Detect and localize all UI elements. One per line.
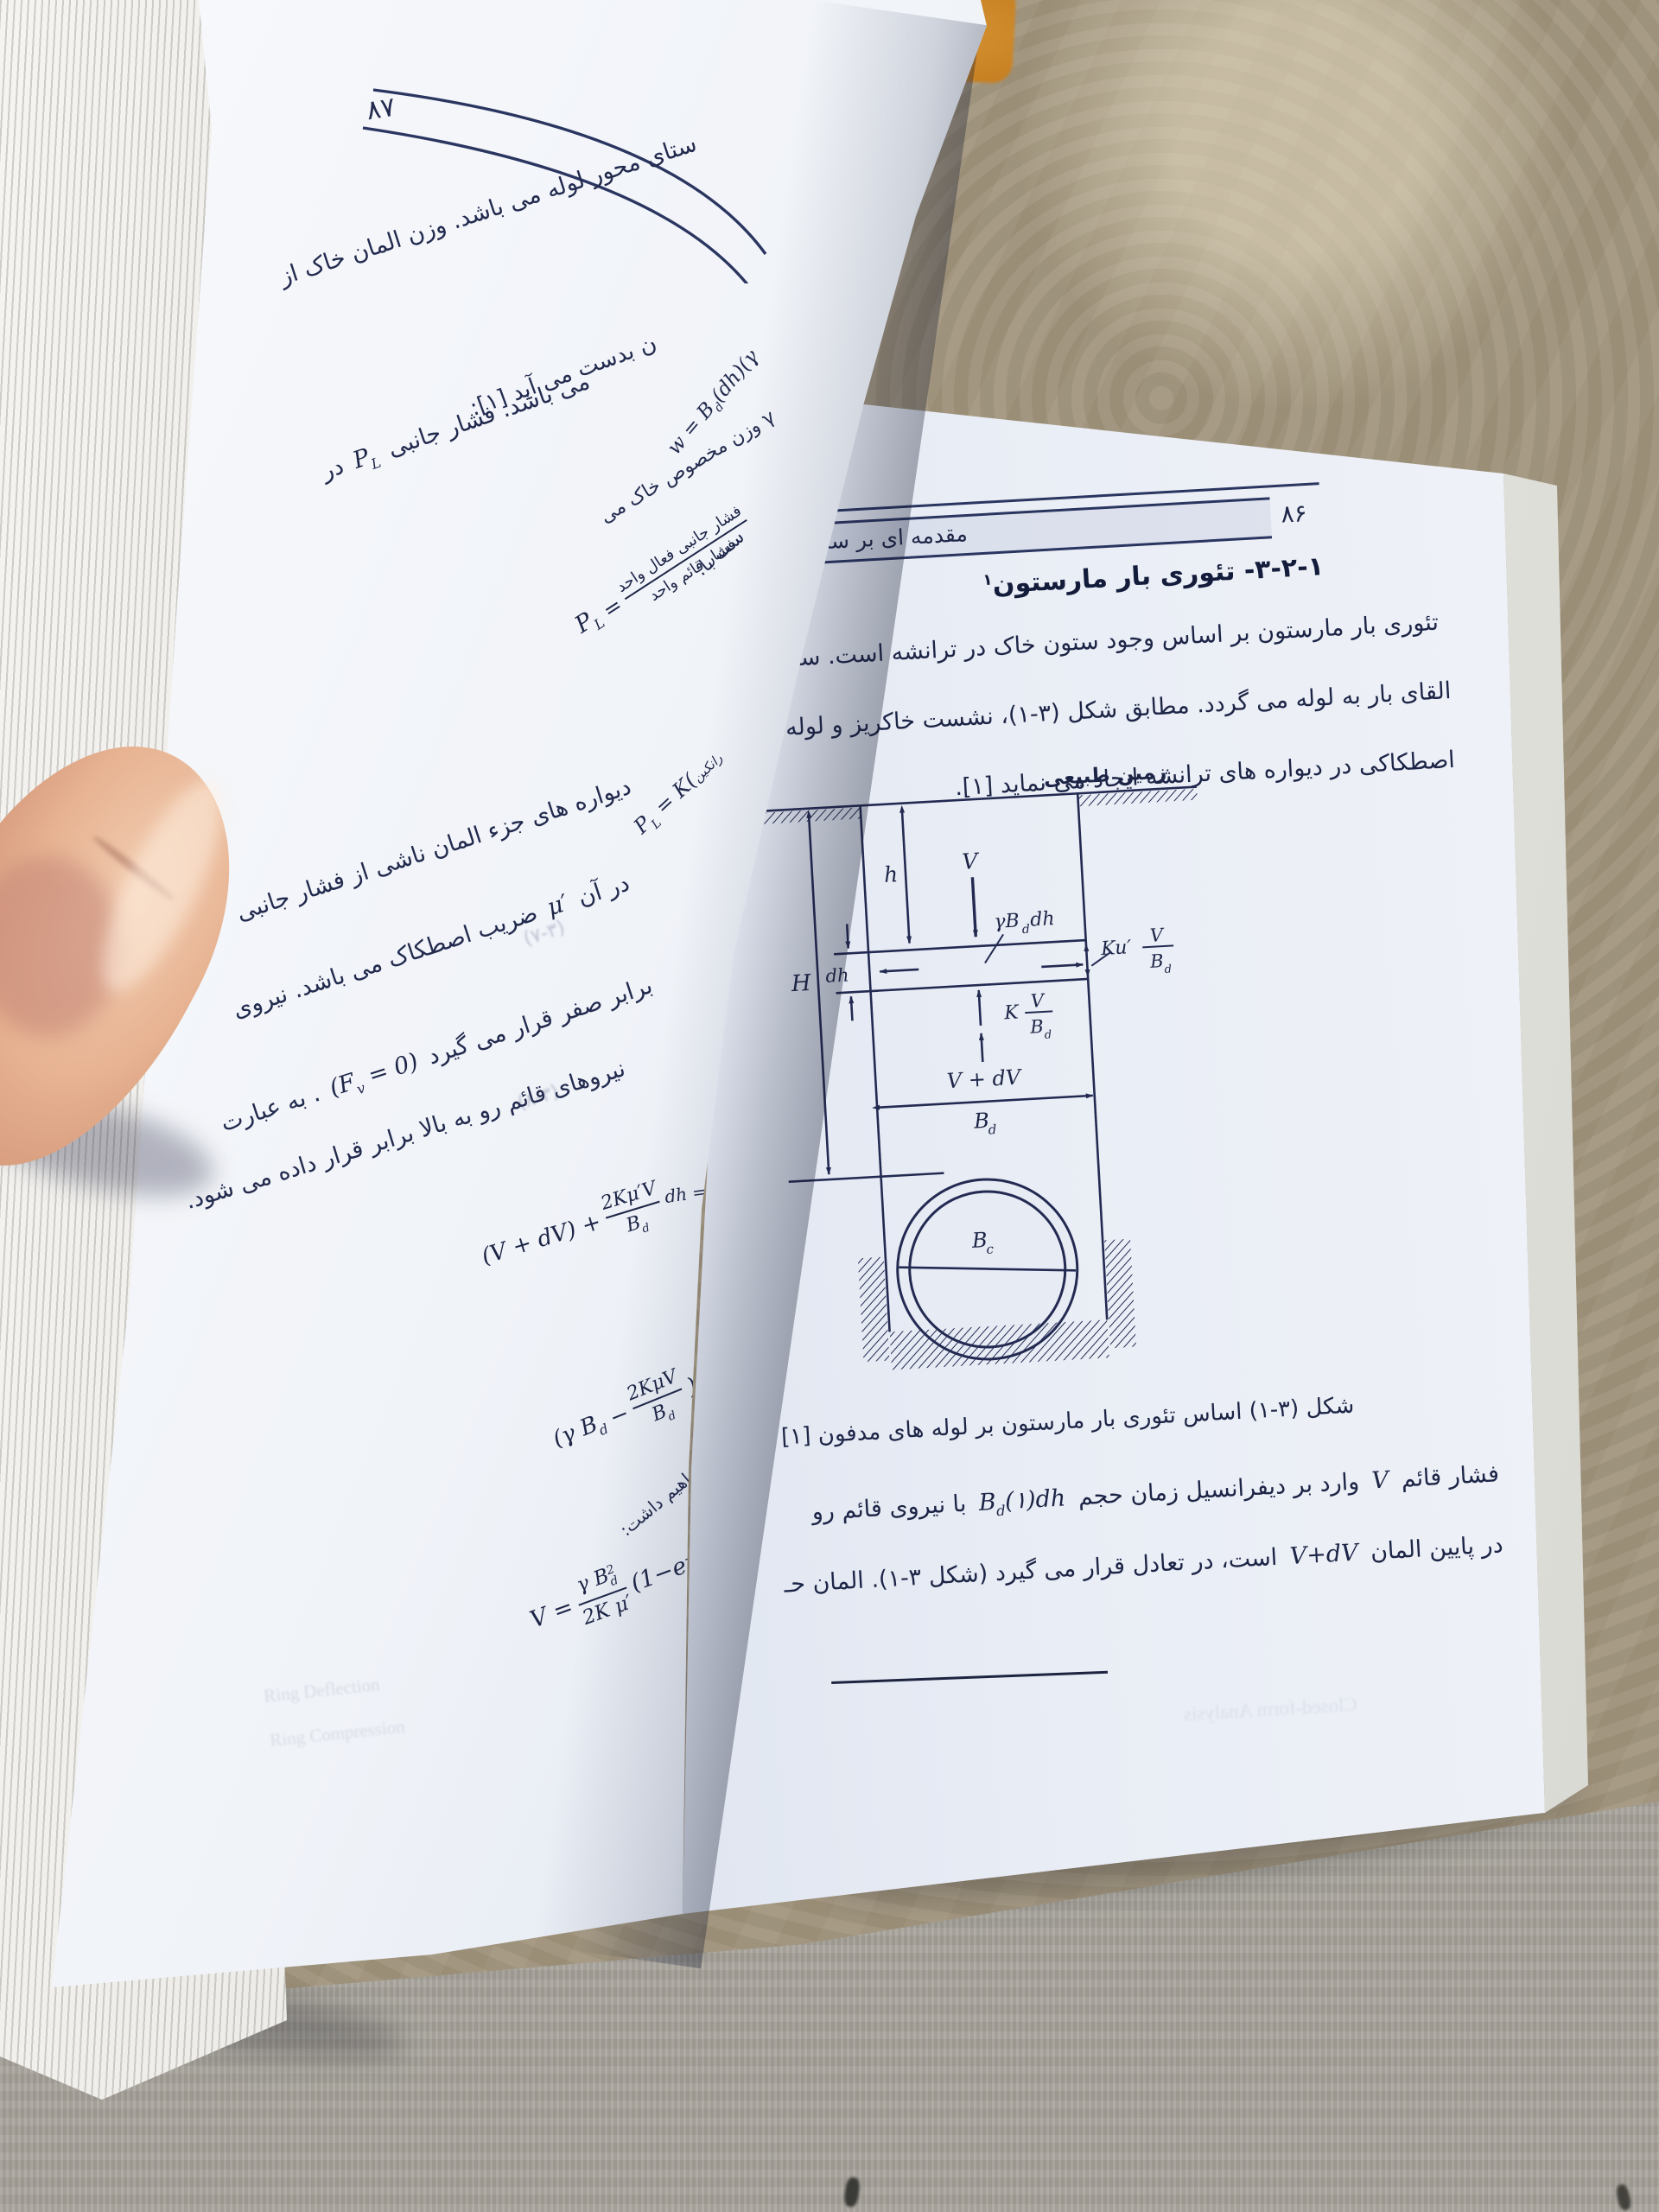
dimension-h-arrow — [902, 812, 909, 944]
body-line: می باشد. فشار جانبی PL در — [280, 355, 633, 502]
label-bc: B — [970, 1228, 988, 1253]
wall-hatch — [858, 1257, 890, 1362]
label-v-plus-dv: V + dV — [946, 1065, 1023, 1093]
right-page-content: مقدمه ای بر سازه های خاک ۸۶ ۳-۲-۱- تئوری… — [826, 388, 1564, 1891]
svg-text:d: d — [988, 1122, 997, 1138]
svg-text:dh: dh — [1030, 908, 1056, 931]
svg-text:V: V — [1030, 990, 1046, 1012]
force-VdV-arrow — [982, 1033, 983, 1062]
page-number: ۸۶ — [1281, 499, 1308, 529]
force-V-arrow — [972, 877, 976, 937]
label-k: K — [1003, 1001, 1020, 1024]
trench-wall-right — [1077, 793, 1107, 1319]
show-through-text: Ring Deflection — [263, 1674, 381, 1707]
label-ku: Ku′ — [1100, 937, 1132, 960]
show-through-text: Closed-form Analysis — [1183, 1694, 1357, 1726]
body-line: در پایین المان V+dV است، در تعادل قرار م… — [760, 1531, 1503, 1599]
label-bd: B — [972, 1109, 989, 1134]
friction-arrow-right — [1041, 964, 1083, 967]
label-h: h — [883, 861, 899, 887]
ground-label: زمین طبیعی — [1043, 761, 1167, 791]
svg-text:d: d — [1164, 963, 1172, 976]
svg-text:V: V — [1149, 925, 1165, 946]
label-V: V — [962, 849, 982, 874]
wall-hatch — [1104, 1239, 1136, 1348]
dimension-Bd-arrow — [879, 1096, 1093, 1108]
label-gamma-bd-dh: γB — [994, 910, 1020, 933]
svg-text:B: B — [1149, 950, 1165, 972]
svg-text:c: c — [986, 1242, 995, 1257]
photo-of-open-book: مقدمه ای بر سازه های خاک ۸۶ ۳-۲-۱- تئوری… — [0, 0, 1659, 2212]
svg-text:d: d — [1044, 1028, 1052, 1041]
show-through-text: Ring Compression — [269, 1716, 406, 1751]
body-line: دیواره های جزء المان ناشی از فشار جانبی — [178, 755, 690, 944]
svg-text:d: d — [1021, 923, 1030, 937]
footnote-rule — [831, 1671, 1108, 1684]
svg-text:B: B — [1029, 1016, 1045, 1038]
shear-arrow-left — [880, 969, 918, 972]
